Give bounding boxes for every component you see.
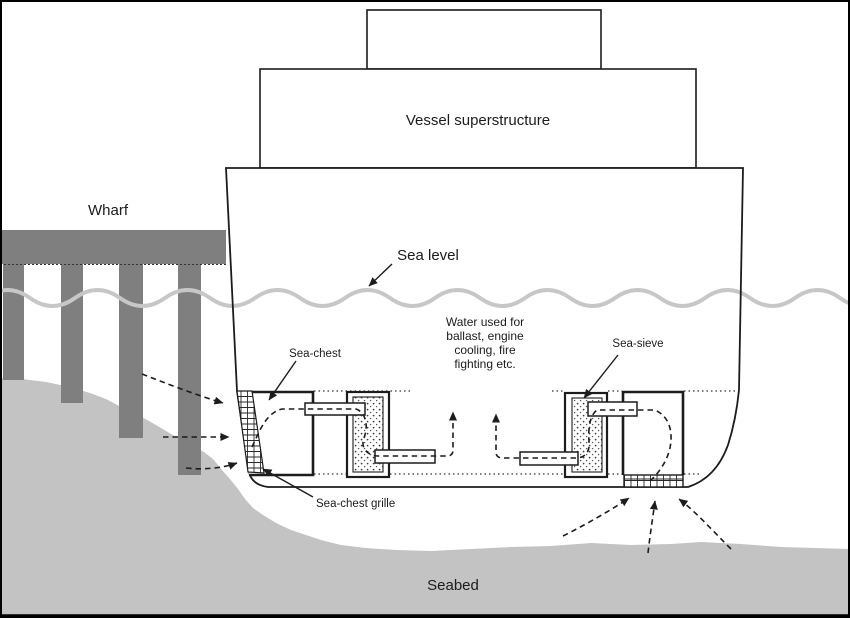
water-note-line-1: Water used for <box>446 315 524 329</box>
ballast-water-intake-diagram: Wharf Vessel superstructure Sea level Wa… <box>0 0 850 618</box>
water-use-note: Water used for ballast, engine cooling, … <box>446 315 524 371</box>
sea-sieve-label: Sea-sieve <box>612 338 663 350</box>
piling-2 <box>61 264 83 403</box>
water-note-line-3: cooling, fire <box>454 343 516 357</box>
wharf-deck <box>0 230 226 264</box>
piling-3 <box>119 264 143 438</box>
water-note-line-4: fighting etc. <box>454 357 515 371</box>
sea-chest-grille-label: Sea-chest grille <box>316 498 395 510</box>
seabed-label: Seabed <box>427 577 479 594</box>
superstructure-top-deck <box>367 10 601 69</box>
vessel-superstructure-label: Vessel superstructure <box>406 112 550 129</box>
pipe-sieve-outlet <box>520 452 578 465</box>
pipe-chest-to-sieve <box>588 402 637 416</box>
sea-level-label: Sea level <box>397 247 459 264</box>
sea-chest-label: Sea-chest <box>289 348 342 360</box>
bottom-grille-hatch <box>624 475 683 487</box>
diagram-canvas: Wharf Vessel superstructure Sea level Wa… <box>0 0 850 618</box>
piling-4 <box>178 264 201 475</box>
water-note-line-2: ballast, engine <box>446 329 524 343</box>
piling-1 <box>3 264 24 380</box>
wharf-label: Wharf <box>88 202 129 219</box>
